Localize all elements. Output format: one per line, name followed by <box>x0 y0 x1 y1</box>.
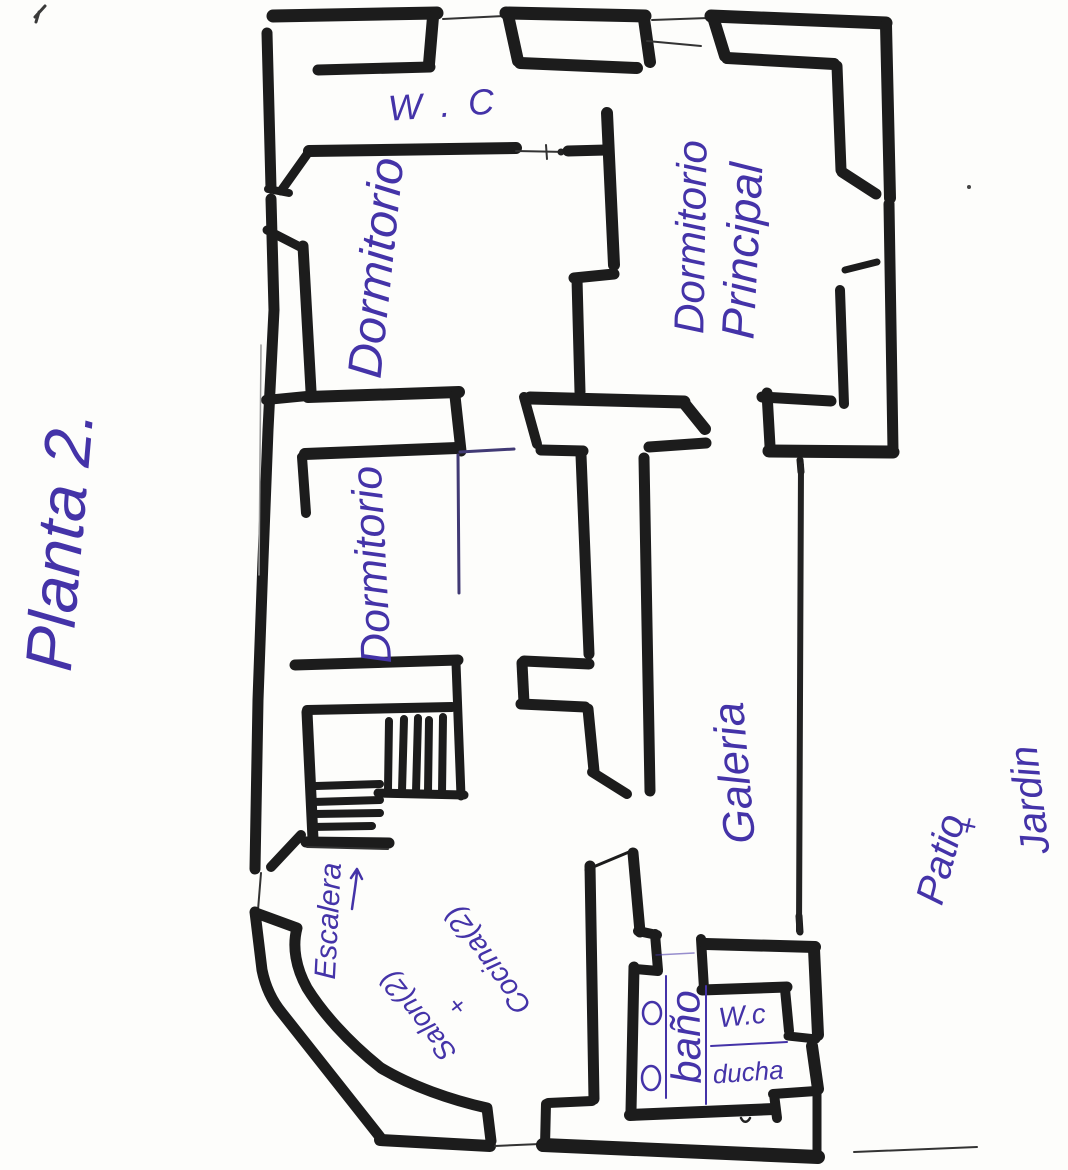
svg-text:W.c: W.c <box>717 998 767 1034</box>
svg-text:Dormitorio: Dormitorio <box>665 140 715 334</box>
svg-text:W . C: W . C <box>387 80 500 129</box>
svg-text:Principal: Principal <box>711 160 772 341</box>
svg-text:ducha: ducha <box>712 1055 785 1090</box>
svg-text:baño: baño <box>661 990 710 1084</box>
svg-text:Escalera: Escalera <box>309 862 348 980</box>
